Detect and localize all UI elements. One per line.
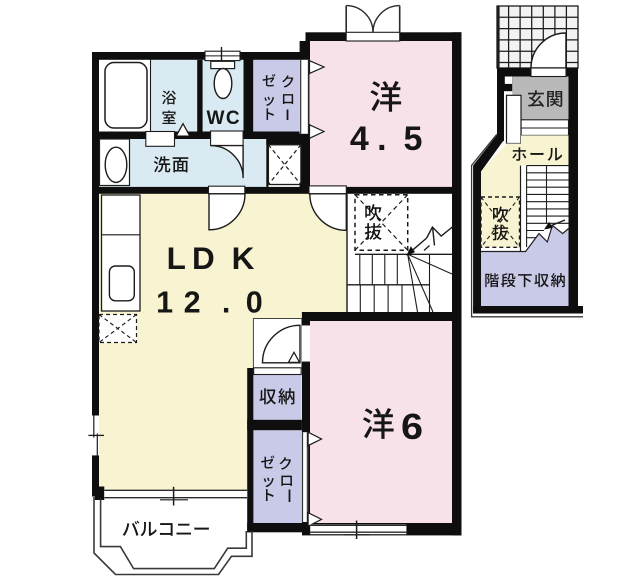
svg-text:4: 4 [350,120,369,158]
svg-text:.: . [377,120,386,158]
svg-text:2: 2 [184,285,201,319]
svg-text:K: K [232,240,255,276]
svg-text:.: . [222,285,230,319]
svg-text:L: L [167,240,186,276]
svg-text:1: 1 [156,285,173,319]
svg-text:6: 6 [401,408,423,448]
svg-text:5: 5 [403,120,422,158]
svg-text:D: D [192,240,215,276]
svg-text:0: 0 [246,285,263,319]
svg-text:WC: WC [206,108,241,129]
